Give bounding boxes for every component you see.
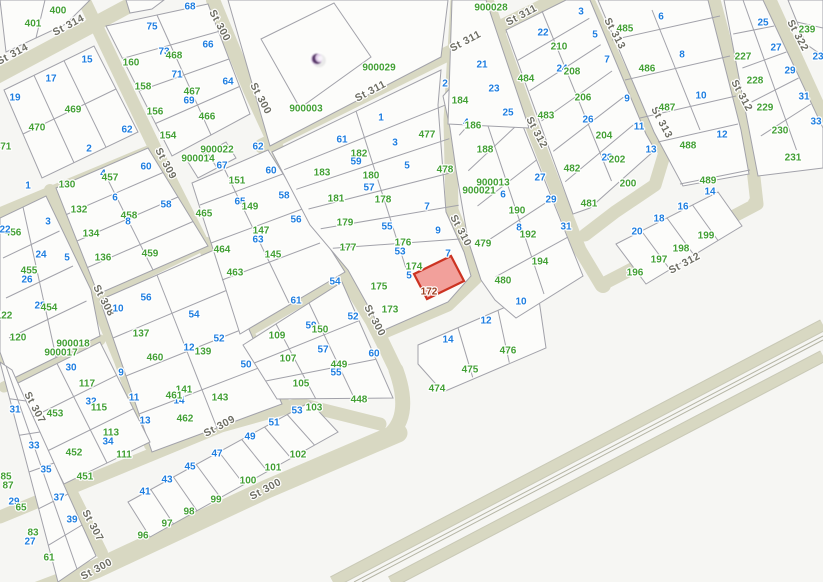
svg-text:25: 25 (502, 108, 514, 119)
svg-text:60: 60 (368, 349, 380, 360)
svg-text:181: 181 (328, 194, 345, 205)
svg-text:134: 134 (83, 229, 100, 240)
svg-text:484: 484 (518, 74, 535, 85)
svg-text:489: 489 (700, 176, 717, 187)
svg-text:120: 120 (10, 333, 27, 344)
svg-text:83: 83 (27, 528, 39, 539)
svg-text:57: 57 (363, 183, 375, 194)
svg-text:109: 109 (269, 331, 286, 342)
svg-text:175: 175 (371, 282, 388, 293)
svg-text:136: 136 (95, 253, 112, 264)
svg-text:58: 58 (160, 200, 172, 211)
svg-text:23: 23 (488, 84, 500, 95)
svg-text:465: 465 (196, 209, 213, 220)
svg-text:9: 9 (118, 368, 124, 379)
svg-text:6: 6 (112, 193, 118, 204)
svg-text:64: 64 (222, 77, 234, 88)
svg-text:19: 19 (9, 93, 21, 104)
svg-text:173: 173 (382, 305, 399, 316)
svg-text:179: 179 (337, 218, 354, 229)
svg-text:482: 482 (564, 164, 581, 175)
svg-text:6: 6 (500, 190, 506, 201)
svg-text:190: 190 (509, 206, 526, 217)
svg-text:1: 1 (25, 181, 31, 192)
svg-text:486: 486 (639, 64, 656, 75)
svg-text:160: 160 (123, 58, 140, 69)
svg-text:71: 71 (171, 70, 183, 81)
svg-text:483: 483 (538, 111, 555, 122)
svg-text:172: 172 (421, 287, 438, 298)
svg-text:470: 470 (29, 123, 46, 134)
svg-text:460: 460 (147, 353, 164, 364)
svg-text:102: 102 (290, 450, 307, 461)
svg-text:49: 49 (244, 432, 256, 443)
svg-text:206: 206 (575, 93, 592, 104)
svg-text:33: 33 (810, 117, 822, 128)
svg-text:188: 188 (477, 145, 494, 156)
svg-text:453: 453 (47, 409, 64, 420)
svg-text:3: 3 (392, 138, 398, 149)
svg-text:61: 61 (43, 553, 55, 564)
svg-text:17: 17 (45, 74, 57, 85)
svg-text:50: 50 (240, 360, 252, 371)
svg-text:27: 27 (534, 173, 546, 184)
svg-text:478: 478 (437, 165, 454, 176)
svg-text:2: 2 (86, 144, 92, 155)
svg-text:8: 8 (679, 50, 685, 61)
svg-text:21: 21 (476, 60, 488, 71)
svg-text:115: 115 (91, 403, 108, 414)
svg-text:67: 67 (216, 161, 228, 172)
svg-text:101: 101 (265, 463, 282, 474)
svg-text:97: 97 (161, 519, 173, 530)
svg-text:194: 194 (532, 257, 549, 268)
svg-text:132: 132 (71, 205, 88, 216)
svg-text:11: 11 (129, 393, 140, 404)
svg-text:52: 52 (347, 312, 359, 323)
svg-text:55: 55 (381, 222, 393, 233)
svg-text:192: 192 (520, 230, 537, 241)
svg-text:475: 475 (462, 365, 479, 376)
svg-text:59: 59 (350, 157, 362, 168)
svg-text:12: 12 (183, 343, 195, 354)
svg-text:178: 178 (375, 195, 392, 206)
svg-text:488: 488 (680, 141, 697, 152)
svg-text:57: 57 (317, 345, 329, 356)
svg-text:47: 47 (211, 449, 223, 460)
svg-text:39: 39 (66, 515, 78, 526)
svg-text:469: 469 (65, 105, 82, 116)
svg-text:61: 61 (336, 135, 348, 146)
svg-text:154: 154 (160, 131, 177, 142)
svg-text:464: 464 (214, 245, 231, 256)
svg-text:55: 55 (330, 368, 342, 379)
svg-text:62: 62 (121, 125, 133, 136)
svg-text:54: 54 (329, 277, 341, 288)
svg-text:143: 143 (212, 393, 229, 404)
svg-text:87: 87 (2, 481, 14, 492)
svg-text:12: 12 (480, 316, 492, 327)
svg-text:454: 454 (41, 303, 58, 314)
svg-text:31: 31 (560, 222, 572, 233)
svg-text:14: 14 (704, 187, 716, 198)
svg-text:448: 448 (351, 395, 368, 406)
svg-text:3: 3 (45, 217, 51, 228)
svg-text:5: 5 (64, 253, 70, 264)
svg-text:139: 139 (195, 347, 212, 358)
svg-text:29: 29 (545, 195, 557, 206)
svg-text:34: 34 (102, 437, 114, 448)
svg-text:208: 208 (564, 67, 581, 78)
svg-text:56: 56 (290, 215, 302, 226)
svg-text:53: 53 (291, 406, 303, 417)
svg-text:100: 100 (240, 476, 257, 487)
svg-text:26: 26 (582, 115, 594, 126)
svg-text:107: 107 (280, 354, 297, 365)
svg-text:14: 14 (442, 335, 454, 346)
svg-text:41: 41 (139, 487, 151, 498)
svg-text:462: 462 (177, 414, 194, 425)
svg-text:900028: 900028 (474, 3, 508, 14)
svg-text:35: 35 (40, 465, 52, 476)
svg-text:451: 451 (77, 472, 94, 483)
svg-text:52: 52 (213, 334, 225, 345)
svg-text:197: 197 (651, 255, 668, 266)
svg-text:200: 200 (620, 179, 637, 190)
svg-text:7: 7 (445, 249, 451, 260)
svg-text:11: 11 (634, 122, 645, 133)
svg-text:184: 184 (452, 96, 469, 107)
svg-text:900021: 900021 (462, 186, 496, 197)
svg-text:12: 12 (716, 130, 728, 141)
svg-text:22: 22 (537, 28, 549, 39)
svg-text:10: 10 (515, 297, 527, 308)
svg-text:149: 149 (242, 202, 259, 213)
svg-text:69: 69 (183, 96, 195, 107)
svg-text:31: 31 (798, 92, 810, 103)
svg-text:26: 26 (21, 275, 33, 286)
svg-text:202: 202 (609, 155, 626, 166)
svg-text:1: 1 (378, 113, 384, 124)
svg-text:29: 29 (784, 66, 796, 77)
svg-text:25: 25 (757, 18, 769, 29)
svg-text:452: 452 (66, 448, 83, 459)
svg-text:9: 9 (624, 94, 630, 105)
svg-text:7: 7 (604, 55, 610, 66)
svg-text:62: 62 (252, 142, 264, 153)
svg-text:400: 400 (50, 6, 67, 17)
svg-text:231: 231 (785, 153, 802, 164)
svg-text:9: 9 (435, 226, 441, 237)
svg-text:466: 466 (199, 112, 216, 123)
svg-text:122: 122 (0, 311, 13, 322)
svg-text:461: 461 (166, 391, 183, 402)
svg-text:63: 63 (252, 235, 264, 246)
svg-text:463: 463 (227, 268, 244, 279)
svg-text:18: 18 (653, 214, 665, 225)
svg-text:239: 239 (799, 25, 816, 36)
svg-text:156: 156 (147, 107, 164, 118)
svg-text:481: 481 (581, 199, 598, 210)
svg-text:186: 186 (465, 121, 482, 132)
svg-text:54: 54 (188, 310, 200, 321)
svg-text:6: 6 (658, 12, 664, 23)
svg-text:145: 145 (265, 250, 282, 261)
svg-text:137: 137 (133, 329, 150, 340)
svg-text:15: 15 (81, 55, 93, 66)
svg-text:61: 61 (290, 296, 302, 307)
svg-text:196: 196 (627, 268, 644, 279)
svg-text:183: 183 (314, 168, 331, 179)
svg-text:2: 2 (442, 79, 448, 90)
svg-text:5: 5 (406, 271, 412, 282)
svg-text:105: 105 (293, 379, 310, 390)
svg-text:900017: 900017 (44, 348, 78, 359)
svg-text:30: 30 (65, 363, 77, 374)
svg-text:3: 3 (578, 7, 584, 18)
svg-text:150: 150 (312, 325, 329, 336)
svg-text:65: 65 (15, 503, 27, 514)
svg-text:900014: 900014 (181, 154, 215, 165)
svg-text:45: 45 (184, 462, 196, 473)
svg-text:33: 33 (28, 441, 40, 452)
svg-text:401: 401 (25, 19, 42, 30)
svg-text:10: 10 (695, 91, 707, 102)
svg-text:5: 5 (404, 161, 410, 172)
svg-text:199: 199 (698, 231, 715, 242)
svg-text:477: 477 (419, 130, 436, 141)
svg-text:37: 37 (53, 493, 65, 504)
svg-text:8: 8 (125, 217, 131, 228)
svg-text:51: 51 (268, 418, 280, 429)
svg-text:56: 56 (140, 293, 152, 304)
svg-text:459: 459 (142, 249, 159, 260)
svg-text:7: 7 (424, 202, 430, 213)
svg-text:68: 68 (184, 2, 196, 13)
svg-text:476: 476 (500, 346, 517, 357)
svg-text:158: 158 (135, 82, 152, 93)
svg-text:10: 10 (112, 304, 124, 315)
svg-text:210: 210 (551, 42, 568, 53)
svg-text:227: 227 (735, 52, 752, 63)
svg-text:53: 53 (394, 247, 406, 258)
svg-text:43: 43 (161, 475, 173, 486)
svg-text:474: 474 (429, 384, 446, 395)
svg-text:151: 151 (229, 176, 246, 187)
svg-text:96: 96 (137, 531, 149, 542)
svg-text:31: 31 (9, 405, 21, 416)
svg-text:480: 480 (495, 276, 512, 287)
svg-text:468: 468 (166, 51, 183, 62)
svg-text:117: 117 (79, 379, 96, 390)
svg-text:103: 103 (306, 403, 323, 414)
svg-text:24: 24 (35, 250, 47, 261)
svg-text:487: 487 (659, 103, 676, 114)
svg-text:180: 180 (363, 171, 380, 182)
svg-text:230: 230 (772, 126, 789, 137)
svg-text:900029: 900029 (362, 63, 396, 74)
svg-text:16: 16 (677, 202, 689, 213)
svg-text:13: 13 (139, 416, 151, 427)
svg-text:13: 13 (645, 145, 657, 156)
svg-text:177: 177 (340, 243, 357, 254)
svg-text:111: 111 (116, 450, 132, 461)
svg-text:60: 60 (140, 162, 152, 173)
svg-text:900003: 900003 (289, 104, 323, 115)
svg-text:204: 204 (596, 131, 613, 142)
svg-text:479: 479 (475, 239, 492, 250)
svg-text:58: 58 (278, 191, 290, 202)
svg-text:198: 198 (673, 244, 690, 255)
svg-text:98: 98 (183, 507, 195, 518)
svg-text:5: 5 (592, 30, 598, 41)
svg-text:23: 23 (812, 52, 823, 63)
svg-text:75: 75 (146, 22, 158, 33)
svg-text:130: 130 (59, 180, 76, 191)
svg-text:20: 20 (631, 227, 643, 238)
svg-text:66: 66 (202, 40, 214, 51)
svg-text:60: 60 (265, 166, 277, 177)
svg-text:485: 485 (617, 24, 634, 35)
svg-text:228: 228 (747, 76, 764, 87)
svg-text:471: 471 (0, 142, 12, 153)
svg-text:22: 22 (0, 225, 11, 236)
svg-text:27: 27 (770, 43, 782, 54)
svg-text:457: 457 (102, 173, 119, 184)
svg-text:99: 99 (210, 495, 222, 506)
svg-text:229: 229 (757, 103, 774, 114)
